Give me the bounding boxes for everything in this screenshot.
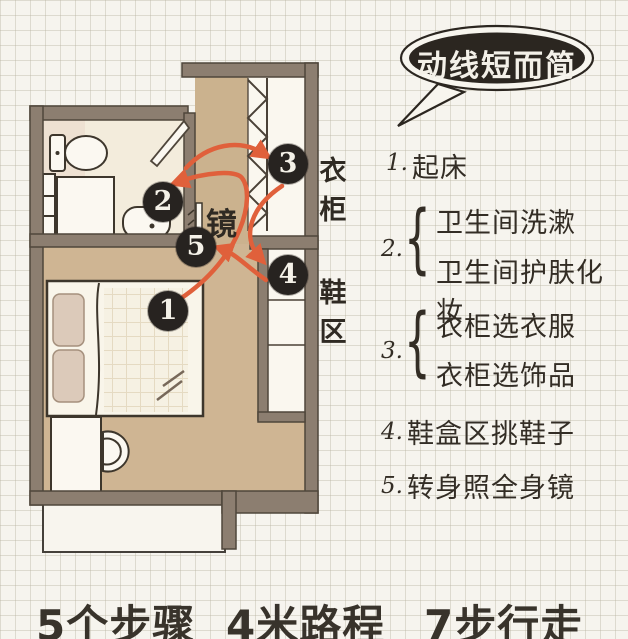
- step-1-text: 起床: [412, 146, 468, 185]
- step-1-number: 1.: [386, 150, 408, 176]
- stat-steps: 5个步骤: [36, 592, 195, 639]
- step-2-number: 2.: [381, 236, 403, 262]
- step-3-brace: {: [404, 303, 424, 379]
- balcony: [43, 498, 225, 552]
- shower-area: [57, 177, 114, 236]
- step-3-number: 3.: [381, 338, 403, 364]
- bathtub-strip: [43, 174, 55, 237]
- callout-text: 动线短而简: [402, 41, 592, 85]
- notebook-page: 动线短而简 镜 衣柜 鞋区 1 2 3 4 5 1. 起床 2. { 卫生间洗漱…: [0, 0, 628, 639]
- step-4-text: 鞋盒区挑鞋子: [407, 412, 575, 451]
- step-3-text-1: 衣柜选衣服: [436, 305, 576, 344]
- step-3-text-2: 衣柜选饰品: [436, 354, 576, 393]
- stat-paces: 7步行走: [424, 592, 583, 639]
- step-5-text: 转身照全身镜: [407, 466, 575, 505]
- step-marker-1: 1: [148, 291, 188, 331]
- shoe-area-label: 鞋区: [316, 274, 350, 352]
- side-table: [51, 417, 101, 493]
- step-5-number: 5.: [381, 473, 403, 499]
- stat-distance: 4米路程: [226, 592, 385, 639]
- toilet: [50, 135, 107, 171]
- step-marker-2: 2: [143, 182, 183, 222]
- step-2-text-1: 卫生间洗漱: [436, 201, 576, 240]
- step-marker-3: 3: [268, 144, 308, 184]
- step-marker-5: 5: [176, 227, 216, 267]
- step-4-number: 4.: [381, 419, 403, 445]
- step-2-brace: {: [404, 200, 424, 276]
- wardrobe-label: 衣柜: [316, 152, 350, 230]
- pillow: [53, 294, 84, 346]
- step-marker-4: 4: [268, 255, 308, 295]
- pillow: [53, 350, 84, 402]
